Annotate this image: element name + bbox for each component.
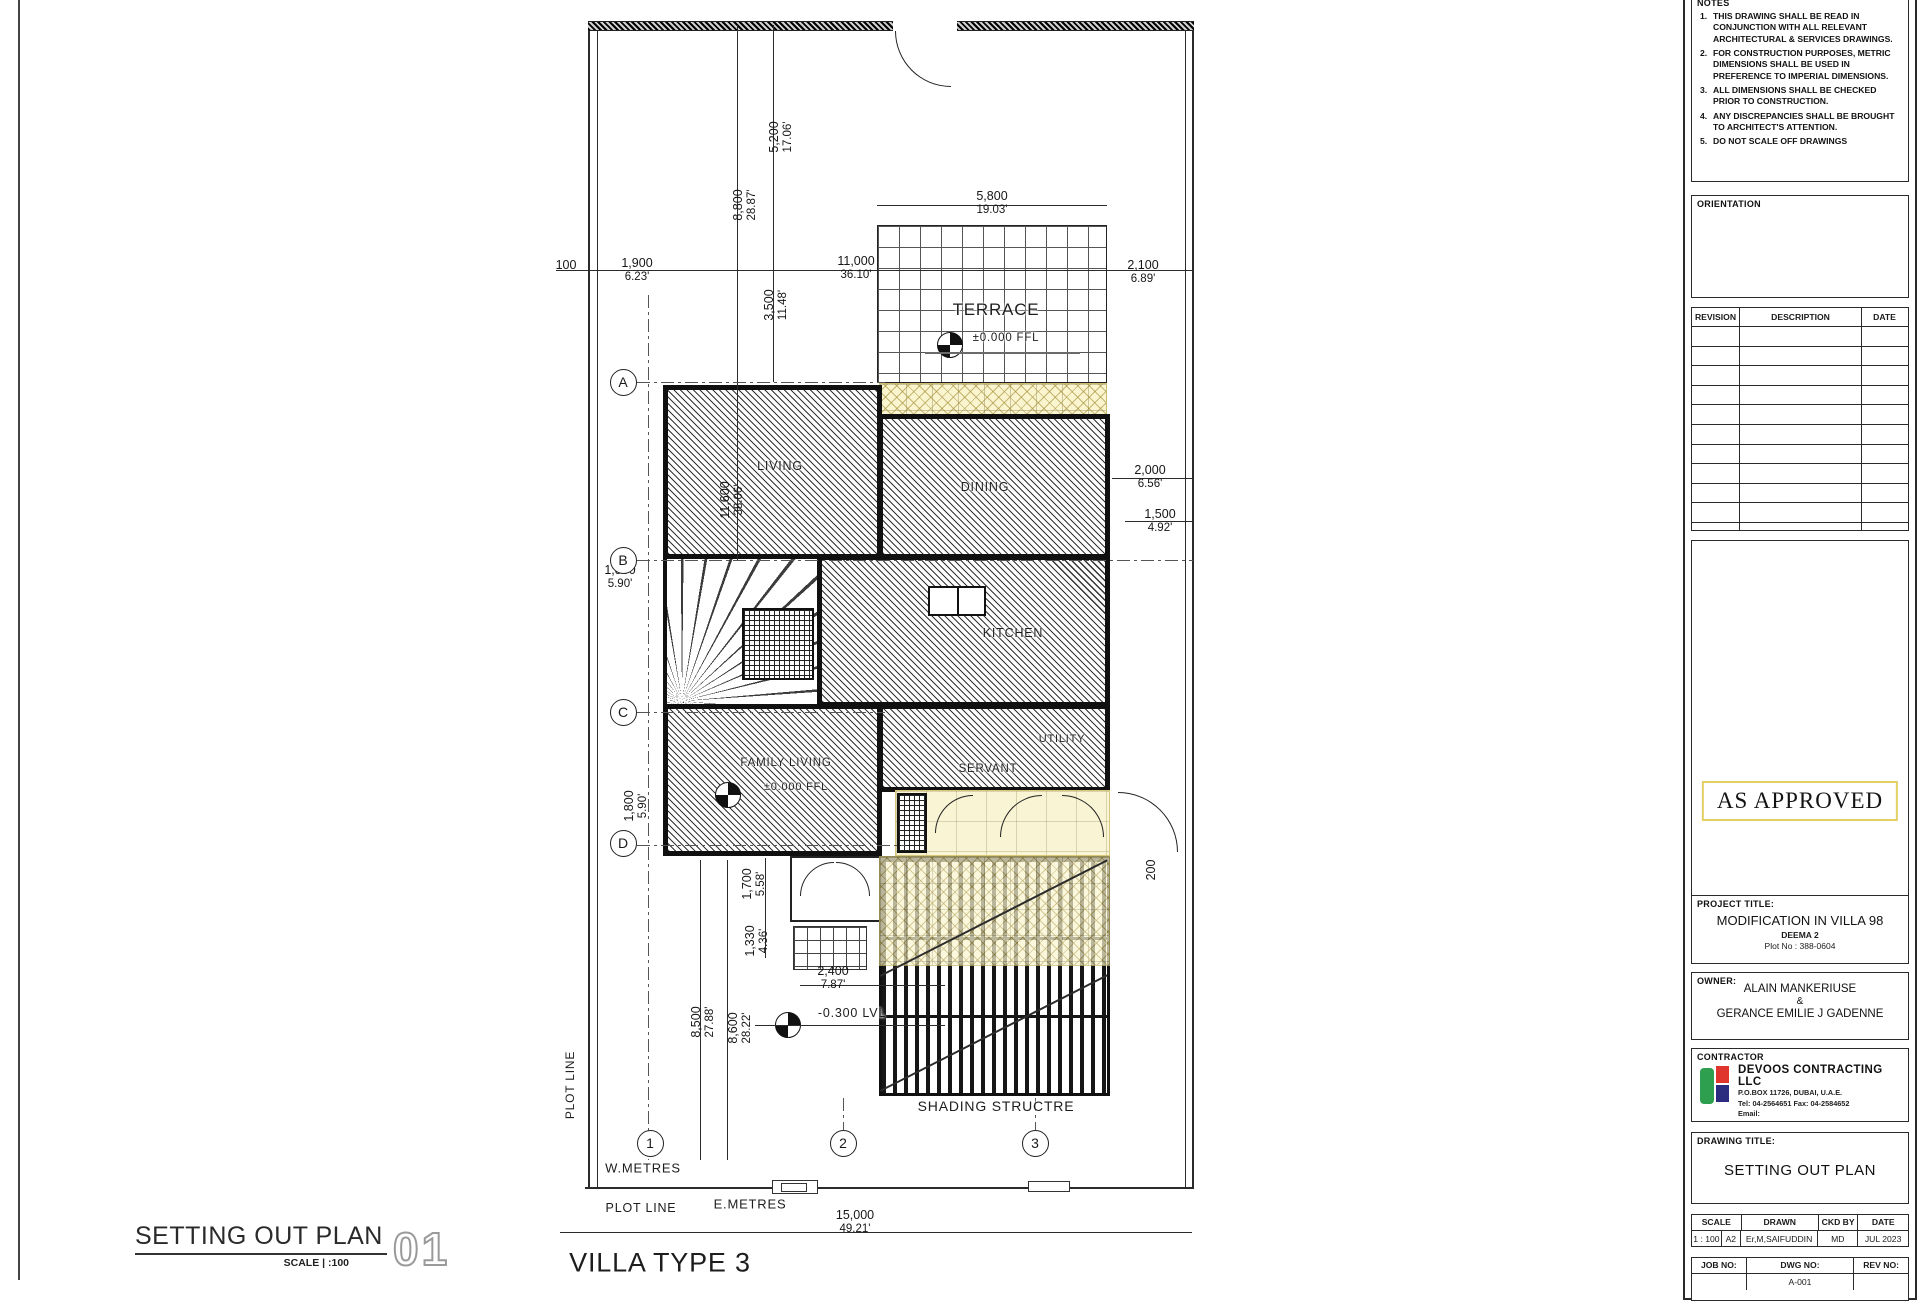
note-item: 1.THIS DRAWING SHALL BE READ IN CONJUNCT… [1692,8,1908,45]
date-header-meta: DATE [1858,1215,1908,1230]
scale-value: 1 : 100 [1692,1231,1722,1247]
grid-line-A [637,382,885,383]
contractor-box: CONTRACTOR DEVOOS CONTRACTING LLC P.O.BO… [1691,1048,1909,1122]
revision-row [1692,523,1908,531]
plan-label: UTILITY [1039,733,1086,745]
ffl-underline [925,352,1080,354]
grid-bubble-3: 3 [1022,1130,1049,1157]
dimension-label: 5,20017.06' [768,121,794,152]
plan-label: FAMILY LIVING [740,757,831,769]
owner-amp: & [1692,996,1908,1007]
project-label: PROJECT TITLE: [1692,896,1908,909]
bath-tiles [897,793,927,853]
drawing-title-box: DRAWING TITLE: SETTING OUT PLAN [1691,1132,1909,1204]
logo-navy-square [1716,1085,1729,1102]
level-marker-family [715,782,741,808]
plan-label: SHADING STRUCTRE [918,1098,1075,1114]
dimension-label: 100 [556,259,577,273]
plot-line-bottom [585,1187,1194,1189]
drawing-title: SETTING OUT PLAN [1692,1162,1908,1179]
date-value: JUL 2023 [1858,1231,1908,1247]
side-gate-door-arc [1118,792,1178,852]
drawing-title-label: DRAWING TITLE: [1692,1133,1908,1146]
notes-list: 1.THIS DRAWING SHALL BE READ IN CONJUNCT… [1692,8,1908,148]
project-title: MODIFICATION IN VILLA 98 [1692,913,1908,928]
job-no-header: JOB NO: [1692,1258,1747,1273]
sheet-scale: SCALE | :100 [135,1257,349,1269]
rev-no-header: REV NO: [1854,1258,1908,1273]
dim-line-v2 [773,25,774,382]
grid-line-C [637,712,885,713]
plan-label: E.METRES [714,1197,787,1212]
plan-label: ±0.000 FFL [764,781,828,793]
dimension-label: 11,60038.06' [719,481,745,518]
dim-line-bottom [560,1232,1192,1233]
dimension-label: 8,80028.87' [732,189,758,220]
checked-by: MD [1818,1231,1858,1247]
entrance-porch [790,856,882,922]
grid-bubble-2: 2 [830,1130,857,1157]
note-item: 4.ANY DISCREPANCIES SHALL BE BROUGHT TO … [1692,108,1908,134]
plan-canvas: 1001,9006.23'11,00036.10'2,1006.89'5,800… [0,0,1680,1280]
date-header: DATE [1862,308,1907,326]
dimension-label: 1,7005.58' [741,868,767,899]
grid-line-1 [648,295,649,1160]
ckd-header: CKD BY [1819,1215,1859,1230]
revision-row [1692,347,1908,367]
dimension-label: 2,1006.89' [1127,259,1158,285]
grid-line-D [637,845,905,846]
grid-bubble-A: A [610,369,637,396]
plot-line-left [588,25,590,1188]
plan-label: ±0.000 FFL [973,332,1040,344]
revision-row [1692,405,1908,425]
plan-label: KITCHEN [983,626,1043,640]
drawn-by: Er,M,SAIFUDDIN [1741,1231,1819,1247]
notes-title: NOTES [1692,0,1908,8]
dimension-label: 1,5004.92' [1144,508,1175,534]
room-servant-utility [878,704,1110,792]
dimension-label: 2,0006.56' [1134,464,1165,490]
kitchen-counter [928,586,986,616]
level-marker-terrace [937,332,963,358]
logo-red-square [1716,1066,1729,1083]
plan-label: PLOT LINE [606,1201,677,1215]
logo-green-bar [1700,1068,1714,1104]
dim-line-v1 [737,25,738,560]
revision-row [1692,445,1908,465]
revision-row [1692,484,1908,504]
modified-strip-terrace [879,383,1107,416]
revision-row [1692,327,1908,347]
owner-name-2: GERANCE EMILIE J GADENNE [1692,1008,1908,1020]
survey-marker-e [772,1180,818,1194]
plan-label: W.METRES [605,1161,681,1176]
drawn-header: DRAWN [1742,1215,1819,1230]
orientation-box: ORIENTATION [1691,195,1909,298]
orientation-label: ORIENTATION [1692,196,1908,209]
revision-header-row: REVISION DESCRIPTION DATE [1692,308,1908,327]
revision-row [1692,366,1908,386]
contractor-label: CONTRACTOR [1692,1049,1908,1062]
project-box: PROJECT TITLE: MODIFICATION IN VILLA 98 … [1691,895,1909,964]
modified-strip-shading [879,856,1110,966]
plan-label: LIVING [757,459,803,473]
sheet-title: SETTING OUT PLAN [135,1222,387,1255]
meta-table: SCALE DRAWN CKD BY DATE 1 : 100 A2 Er,M,… [1691,1214,1909,1247]
note-item: 2.FOR CONSTRUCTION PURPOSES, METRIC DIME… [1692,45,1908,82]
contractor-phone: Tel: 04-2564651 Fax: 04-2584652 [1738,1099,1904,1110]
survey-marker-right [1028,1181,1070,1192]
description-header: DESCRIPTION [1740,308,1862,326]
gate-door-arc [895,31,951,87]
contractor-email: Email: info@devoos.com/devoosbm@gmail.co… [1738,1109,1904,1122]
room-family-living [663,704,882,856]
dwg-no-header: DWG NO: [1747,1258,1855,1273]
job-no-value [1692,1274,1747,1290]
dimension-label: 1,8005.90' [623,790,649,821]
dim-line-v5 [727,860,728,1160]
grid-bubble-D: D [610,830,637,857]
plan-label: PLOT LINE [563,1051,577,1119]
plan-label: VILLA TYPE 3 [569,1248,751,1279]
paper-size: A2 [1722,1231,1741,1247]
approval-stamp: AS APPROVED [1702,781,1898,821]
plan-label: TERRACE [953,300,1040,320]
revision-row [1692,464,1908,484]
dimension-label: 11,00036.10' [837,255,874,281]
grid-bubble-1: 1 [637,1130,664,1157]
scale-header: SCALE [1692,1215,1742,1230]
approval-box: AS APPROVED [1691,540,1909,900]
plot-line-right-inner [1185,25,1186,1188]
revision-row [1692,425,1908,445]
grid-bubble-B: B [610,547,637,574]
sheet-number: 01 [393,1222,450,1276]
sheet: { "plan": { "bottom_title": { "title": "… [0,0,1920,1280]
stair-landing [742,608,814,680]
grid-line-B [637,560,1193,561]
contractor-logo [1700,1066,1732,1106]
dimension-label: 8,60028.22' [727,1012,753,1043]
contractor-address: P.O.BOX 11726, DUBAI, U.A.E. [1738,1088,1904,1099]
meta2-table: JOB NO: DWG NO: REV NO: A-001 [1691,1257,1909,1301]
dimension-label: 1,3304.36' [744,925,770,956]
revision-header: REVISION [1692,308,1740,326]
project-community: DEEMA 2 [1692,930,1908,940]
note-item: 5.DO NOT SCALE OFF DRAWINGS [1692,133,1908,147]
notes-box: NOTES 1.THIS DRAWING SHALL BE READ IN CO… [1691,0,1909,182]
sheet-title-block: SETTING OUT PLAN SCALE | :100 01 [135,1222,465,1269]
dimension-label: 1,9006.23' [621,257,652,283]
revision-row [1692,503,1908,523]
owner-box: OWNER: ALAIN MANKERIUSE & GERANCE EMILIE… [1691,972,1909,1040]
dwg-no-value: A-001 [1747,1274,1855,1290]
plot-wall-top [588,21,1194,31]
dimension-label: 200 [1145,860,1159,881]
grid-bubble-C: C [610,699,637,726]
revision-table: REVISION DESCRIPTION DATE [1691,307,1909,531]
contractor-name: DEVOOS CONTRACTING LLC [1738,1064,1904,1088]
dimension-label: 2,4007.87' [817,965,848,991]
plan-label: DINING [961,480,1010,494]
dimension-label: 8,50027.88' [690,1006,716,1037]
plot-line-right [1192,25,1194,1188]
plan-label: SERVANT [959,763,1018,775]
plan-label: -0.300 LVL [818,1006,886,1020]
dimension-label: 15,00049.21' [836,1209,874,1235]
project-plot-no: Plot No : 388-0604 [1692,941,1908,951]
note-item: 3.ALL DIMENSIONS SHALL BE CHECKED PRIOR … [1692,82,1908,108]
titleblock-column: NOTES 1.THIS DRAWING SHALL BE READ IN CO… [1683,0,1917,1300]
dimension-label: 5,80019.03' [976,190,1007,216]
room-kitchen [817,555,1110,707]
revision-row [1692,386,1908,406]
grid-line-2 [843,1098,844,1134]
dim-line-lvl [755,1025,945,1026]
dimension-label: 3,50011.48' [763,289,789,320]
rev-no-value [1854,1274,1908,1290]
plot-line-left-inner [597,25,598,1188]
